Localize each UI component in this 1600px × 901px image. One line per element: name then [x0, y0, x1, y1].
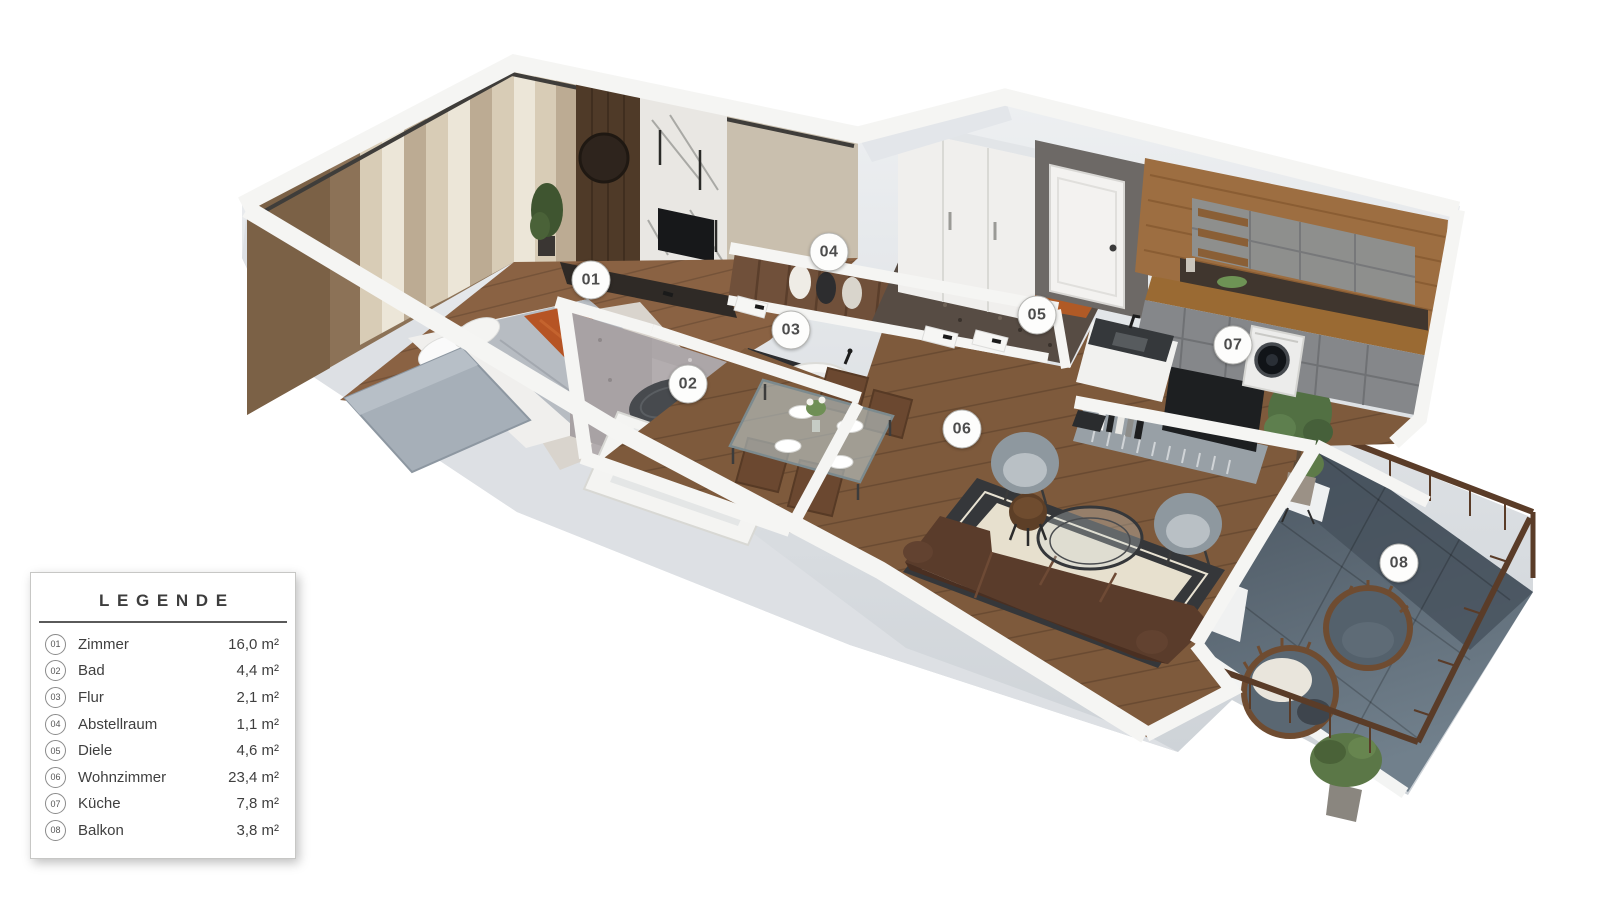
legend-row: 05 Diele 4,6 m² [31, 737, 295, 764]
floorplan-image: 01 02 03 04 05 06 07 [0, 0, 1600, 901]
legend-row-label: Küche [78, 795, 236, 812]
legend-title: LEGENDE [31, 591, 295, 611]
room-badge: 06 [943, 410, 982, 449]
entry-door [1050, 165, 1124, 308]
room-badge-number: 01 [582, 271, 601, 289]
legend-row-area: 7,8 m² [236, 795, 279, 812]
legend-row: 02 Bad 4,4 m² [31, 658, 295, 685]
legend-row-label: Zimmer [78, 636, 228, 653]
legend-row-label: Diele [78, 742, 236, 759]
legend-row-number: 01 [45, 634, 66, 655]
legend-row-label: Bad [78, 662, 236, 679]
legend-row-number: 02 [45, 660, 66, 681]
room-badge: 01 [572, 261, 611, 300]
room-badge: 07 [1214, 326, 1253, 365]
legend-row: 08 Balkon 3,8 m² [31, 817, 295, 844]
legend-row-number: 08 [45, 820, 66, 841]
legend-row-area: 2,1 m² [236, 689, 279, 706]
legend-row-number: 03 [45, 687, 66, 708]
legend-rows: 01 Zimmer 16,0 m² 02 Bad 4,4 m² 03 Flur … [31, 631, 295, 844]
legend-row-number: 05 [45, 740, 66, 761]
room-badge: 05 [1018, 296, 1057, 335]
legend-row-area: 4,6 m² [236, 742, 279, 759]
legend-row-label: Abstellraum [78, 716, 236, 733]
legend-row-label: Wohnzimmer [78, 769, 228, 786]
legend-row-area: 1,1 m² [236, 716, 279, 733]
legend-row: 01 Zimmer 16,0 m² [31, 631, 295, 658]
room-badge-number: 03 [782, 321, 801, 339]
round-mirror [580, 134, 628, 182]
legend-row-area: 23,4 m² [228, 769, 279, 786]
room-badge: 03 [772, 311, 811, 350]
legend-row: 04 Abstellraum 1,1 m² [31, 711, 295, 738]
room-badge-number: 04 [820, 243, 839, 261]
balcony-plant [1310, 733, 1382, 822]
legend-row-label: Balkon [78, 822, 236, 839]
washing-machine [1243, 326, 1304, 396]
legend-row: 07 Küche 7,8 m² [31, 791, 295, 818]
legend-row: 06 Wohnzimmer 23,4 m² [31, 764, 295, 791]
coffee-table [1038, 507, 1142, 569]
room-badge: 02 [669, 365, 708, 404]
legend-row-number: 04 [45, 714, 66, 735]
legend-row-number: 07 [45, 793, 66, 814]
room-badge-number: 07 [1224, 336, 1243, 354]
legend-row: 03 Flur 2,1 m² [31, 684, 295, 711]
room-badge-number: 06 [953, 420, 972, 438]
room-badge: 04 [810, 233, 849, 272]
door-handle [1110, 245, 1117, 252]
legend-row-label: Flur [78, 689, 236, 706]
legend-row-area: 3,8 m² [236, 822, 279, 839]
room-badge-number: 08 [1390, 554, 1409, 572]
room-badge-number: 05 [1028, 306, 1047, 324]
legend-row-area: 4,4 m² [236, 662, 279, 679]
legend-row-number: 06 [45, 767, 66, 788]
room-badge: 08 [1380, 544, 1419, 583]
legend-row-area: 16,0 m² [228, 636, 279, 653]
legend-panel: LEGENDE 01 Zimmer 16,0 m² 02 Bad 4,4 m² … [30, 572, 296, 859]
herb-bowl [1217, 276, 1247, 288]
legend-divider [39, 621, 287, 623]
room-badge-number: 02 [679, 375, 698, 393]
